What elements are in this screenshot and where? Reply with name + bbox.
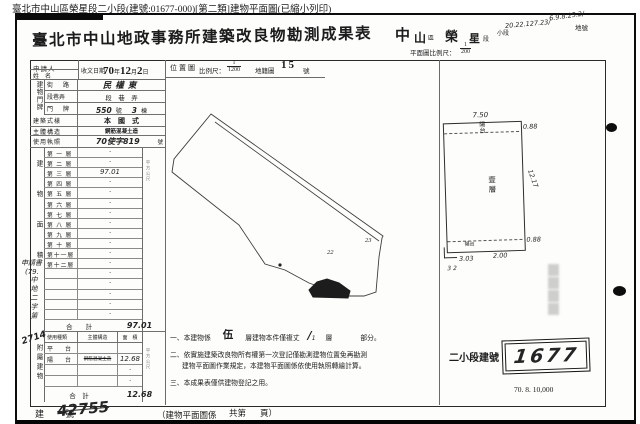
floor-area-value: · — [78, 210, 142, 217]
floor-area-value: · — [78, 189, 142, 196]
license-suffix: 號 — [157, 138, 163, 146]
dim-bottom-a: 3.03 — [459, 254, 474, 262]
note-3: 三、本成果表僅供建物登記之用。 — [170, 377, 435, 387]
district-char-2: 山 — [414, 29, 426, 46]
district-suffix: 區 — [428, 33, 434, 42]
date-month: 12 — [120, 65, 131, 77]
lane-label: 段巷弄 — [44, 91, 78, 102]
attached-table: 平 台 陽 台 鋼筋混凝土造 12.68 · · — [44, 343, 142, 387]
attached-structure — [78, 365, 118, 375]
note1-floor-count-stamp: 伍 — [223, 327, 234, 342]
cadastral-map-suffix: 號 — [303, 65, 310, 75]
style-value: 本 國 式 — [78, 116, 165, 126]
note-1: 一、本建物係 伍 層建物本件僅複丈 ∕ 1 層 部分。 — [170, 327, 435, 342]
door-label: 門 牌 — [44, 103, 78, 114]
divider-plan-area — [439, 60, 440, 405]
row-license: 使用執照 70使字819 號 — [30, 136, 165, 148]
print-code: 70. 8. 10,000 — [514, 385, 553, 394]
lot-mark-23: 23 — [365, 237, 372, 244]
floor-label: 第 六 層 — [44, 199, 78, 208]
location-scale-fraction: 1 1200 — [227, 60, 241, 73]
plan-scale-denominator: 200 — [460, 49, 471, 55]
left-table: 申請人 姓 名 收文日期 70年12月2日 建物門牌 建物面積 附屬建物 街 路… — [30, 60, 165, 405]
row-total-floors: 合 計 97.01 — [44, 320, 165, 332]
total-floors-value: 97.01 — [114, 321, 165, 330]
attached-row: · — [44, 365, 142, 376]
floor-row: 第 四 層 · — [44, 178, 142, 188]
street-label: 街 路 — [44, 79, 78, 90]
note-2-line1: 二、依實施建築改良物所有權第一次登記僅勘測建物位置免再勘測 — [170, 349, 435, 359]
plan-hw-marks: 3 2 — [447, 265, 457, 272]
unit-label-attached: 平方公尺 — [145, 348, 151, 370]
subsection-bldg-no-label: 二小段建號 — [449, 349, 499, 364]
dim-right-top: 0.88 — [523, 122, 538, 130]
location-scale-denominator: 1200 — [227, 67, 241, 73]
floor-plan: 陽台 壹層 陽台 7.50 0.88 12.17 0.88 3.03 2.00 … — [443, 117, 532, 270]
door-block-suffix: 棟 — [141, 109, 147, 115]
lot-label: 地號 — [575, 22, 588, 32]
date-year: 70 — [103, 65, 114, 77]
attached-area-header: 面 積 — [118, 334, 142, 341]
group-label-door-plate: 建物門牌 — [33, 81, 43, 114]
floor-label: 第 四 層 — [44, 178, 78, 187]
total-attached-value: 12.68 — [114, 390, 165, 399]
floor-row: 第 六 層 · — [44, 199, 142, 209]
subject-building-hatch — [309, 279, 350, 298]
plan-scale-label: 平面圖比例尺： — [410, 47, 456, 57]
footer-paren-mid: 共第 — [229, 407, 246, 419]
attached-area: · — [118, 366, 142, 374]
note1-post1: 層 — [326, 332, 333, 342]
margin-filing-note: 申請書 (79. 中地二字第 2714 — [21, 258, 61, 341]
license-label: 使用執照 — [30, 136, 78, 147]
location-scale-label: 比例尺： — [199, 65, 225, 75]
plan-scale-numerator: 1 — [460, 42, 471, 49]
bldg-no-value: 1677 — [512, 344, 580, 368]
attached-area: 12.68 — [118, 355, 142, 363]
structure-label: 主體構造 — [30, 127, 78, 135]
section-char-1: 榮 — [445, 26, 458, 45]
floor-label: 第 八 層 — [44, 219, 78, 228]
district-char-1: 中 — [395, 24, 410, 45]
row-structure: 主體構造 鋼筋混凝土造 — [30, 127, 165, 136]
floor-area-value: · — [78, 250, 142, 257]
floor-row: 第 七 層 · — [44, 209, 142, 219]
floor-row: 第 五 層 · — [44, 188, 142, 198]
floor-label: 第 三 層 — [44, 168, 78, 177]
attached-row: 平 台 — [44, 343, 142, 354]
street-value: 民權東 — [78, 79, 165, 91]
footer-paren-left: （建物平面圖係 — [157, 409, 217, 421]
floor-label: 第 九 層 — [44, 229, 78, 238]
floor-label: 第 一 層 — [44, 148, 78, 157]
attached-structure — [78, 376, 118, 386]
row-door-number: 門 牌 550 號 3 棟 — [44, 103, 165, 115]
plan-scale-fraction: 1 200 — [460, 42, 471, 55]
floor-area-value: · — [78, 301, 142, 308]
cadastral-map-label: 地籍圖 — [255, 65, 275, 75]
tiny-col-line — [142, 148, 143, 402]
attached-structure-header: 主體構造 — [78, 332, 118, 342]
floor-area-value: · — [78, 240, 142, 247]
survey-tick — [278, 263, 281, 266]
handwritten-corner-note: 6.9.8.25.2/ — [549, 10, 585, 23]
filing-note-line1: 申請書 — [21, 258, 61, 268]
dim-top: 7.50 — [472, 111, 488, 119]
attached-use: 平 台 — [44, 343, 78, 353]
row-style: 建築式樣 本 國 式 — [30, 115, 165, 127]
location-sketch: 22 23 — [167, 92, 437, 307]
scanned-sheet: 臺北市中山地政事務所建築改良物勘測成果表 中 山 區 榮 星 段 小段 20.2… — [15, 13, 636, 424]
floor-row: 第 十 層 · — [44, 239, 142, 249]
door-number-suffix: 號 — [116, 109, 122, 115]
balcony-top-label: 陽台 — [477, 121, 486, 133]
location-scale-numerator: 1 — [227, 60, 241, 67]
balcony-bottom-label: 陽台 — [464, 240, 474, 247]
handwritten-lot-numbers: 20.22.127.23/ — [505, 18, 551, 30]
door-block-hw: 3 — [132, 106, 137, 115]
floor-label: 第 七 層 — [44, 209, 78, 218]
section-suffix: 段 — [483, 34, 489, 43]
parcel-inner-edge — [215, 122, 379, 241]
structure-value: 鋼筋混凝土造 — [78, 127, 165, 135]
floor-area-value: · — [78, 291, 142, 298]
floor-area-value: · — [78, 230, 142, 237]
applicant-cell-divider — [30, 69, 78, 70]
dim-right-bottom: 0.88 — [526, 235, 541, 243]
license-value: 70使字819 — [78, 136, 157, 147]
notes-block: 一、本建物係 伍 層建物本件僅複丈 ∕ 1 層 部分。 二、依實施建築改良物所有… — [170, 327, 435, 387]
attached-row: · — [44, 376, 142, 387]
divider-left-table — [165, 60, 166, 405]
lot-mark-22: 22 — [327, 249, 334, 256]
note-2-line2: 建物平面圖作業規定，本建物平面圖係依使用執照轉繪計算。 — [182, 360, 435, 370]
floor-area-value: · — [78, 159, 142, 166]
floor-area-value: · — [78, 179, 142, 186]
floor-row: 第 九 層 · — [44, 229, 142, 239]
plan-notch — [444, 247, 457, 258]
note1-mid: 層建物本件僅複丈 — [245, 332, 299, 342]
door-number-hw: 550 — [96, 106, 112, 115]
plan-outline — [443, 121, 526, 253]
floor-label: 第 五 層 — [44, 188, 78, 197]
location-strip-underline — [165, 77, 325, 78]
floor-area-value: · — [78, 220, 142, 227]
attached-area: · — [118, 377, 142, 385]
floor-label: 第 十 層 — [44, 239, 78, 248]
received-date-stamp: 70年12月2日 — [103, 61, 149, 79]
floor-area-value: · — [78, 149, 142, 156]
floor-row: 第 一 層 · — [44, 148, 142, 158]
floor-area-value: · — [78, 280, 142, 287]
floor-area-value: · — [78, 270, 142, 277]
attached-use — [44, 365, 78, 375]
floor-area-value: · — [78, 311, 142, 318]
floor-row: 第 三 層 97.01 — [44, 168, 142, 178]
attached-use: 陽 台 — [44, 354, 78, 364]
row-street: 街 路 民權東 — [44, 79, 165, 91]
dim-bottom-b: 2.00 — [493, 251, 508, 259]
parcel-outline — [172, 114, 383, 296]
form-title: 臺北市中山地政事務所建築改良物勘測成果表 — [32, 21, 372, 50]
cadastral-map-number: 15 — [281, 59, 296, 71]
bldg-no-box: 1677 — [505, 341, 588, 372]
date-day-label: 日 — [143, 70, 149, 76]
punch-hole-bottom — [613, 286, 626, 296]
location-map-label: 位置圖 — [170, 63, 197, 73]
first-floor-label: 壹層 — [486, 176, 498, 195]
attached-structure: 鋼筋混凝土造 — [78, 354, 118, 364]
floor-row: 第 二 層 · — [44, 158, 142, 168]
received-date-label: 收文日期 — [81, 66, 105, 75]
filing-note-line2: (79. — [25, 268, 61, 276]
style-label: 建築式樣 — [30, 115, 78, 126]
attached-structure — [78, 343, 118, 353]
note1-pre: 一、本建物係 — [170, 332, 211, 342]
unit-label-floors: 平方公尺 — [145, 160, 151, 182]
note1-post2: 部分。 — [360, 332, 380, 342]
floor-area-value: 97.01 — [78, 169, 142, 176]
group-label-attached: 附屬建物 — [33, 344, 43, 400]
applicant-col-divider — [78, 60, 79, 79]
footer-paren-right: 頁） — [260, 407, 277, 419]
floor-label: 第十一層 — [44, 249, 78, 258]
footer-bldg-no-handwritten: 42755 — [56, 398, 110, 420]
floor-area-value: · — [78, 260, 142, 267]
filing-note-chars: 中地二字第 — [29, 276, 39, 331]
floor-label: 第 二 層 — [44, 158, 78, 167]
scan-edge-blob — [15, 13, 103, 20]
floor-row: 第 八 層 · — [44, 219, 142, 229]
floor-area-value: · — [78, 200, 142, 207]
note1-handwritten-sub: 1 — [312, 335, 316, 342]
attached-row: 陽 台 鋼筋混凝土造 12.68 — [44, 354, 142, 365]
punch-hole-top — [606, 123, 617, 132]
attached-use — [44, 376, 78, 386]
